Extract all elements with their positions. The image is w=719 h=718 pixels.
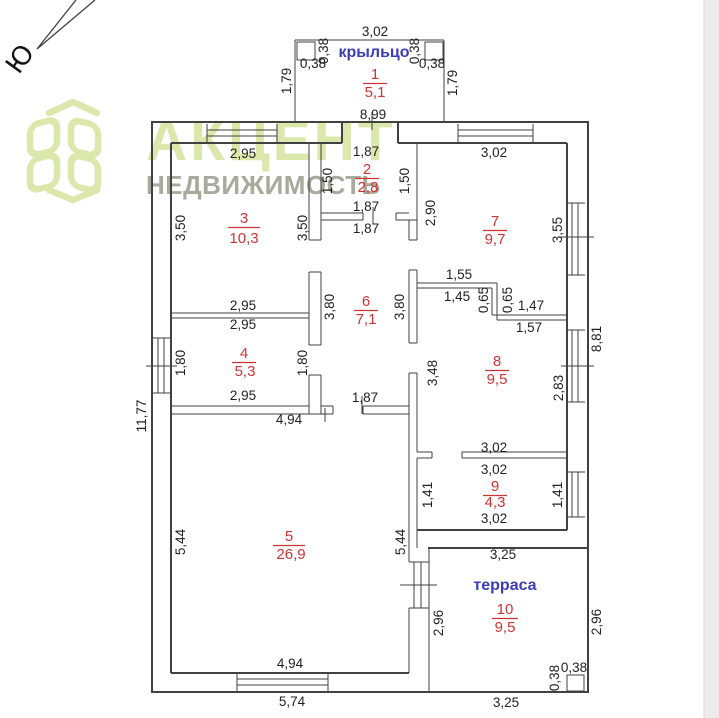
room-number: 5 xyxy=(285,528,293,545)
dimension-label: 1,80 xyxy=(295,350,310,376)
dimension-label: 1,79 xyxy=(445,70,460,96)
dimension-label: 1,45 xyxy=(444,289,470,304)
dimension-label: 0,38 xyxy=(316,38,331,64)
cube-logo-icon xyxy=(30,102,98,200)
dimension-label: 3,02 xyxy=(481,440,507,455)
room-number: 6 xyxy=(362,293,370,310)
dimension-label: 2,95 xyxy=(230,317,256,332)
compass: Ю xyxy=(0,0,95,79)
room-number: 4 xyxy=(240,345,248,362)
dimension-label: 3,25 xyxy=(493,695,519,710)
dimension-label: 3,02 xyxy=(481,145,507,160)
room-area: 26,9 xyxy=(276,546,305,563)
dimension-label: 0,38 xyxy=(561,660,587,675)
dimension-label: 2,96 xyxy=(431,610,446,636)
dimension-label: 1,47 xyxy=(518,298,544,313)
terrace-label: терраса xyxy=(473,577,536,594)
dimension-label: 3,80 xyxy=(392,294,407,320)
dimension-label: 3,02 xyxy=(481,462,507,477)
dimension-label: 0,65 xyxy=(476,287,491,313)
dimension-label: 2,96 xyxy=(589,609,604,635)
dimension-label: 1,87 xyxy=(353,221,379,236)
dimension-label: 3,25 xyxy=(490,547,516,562)
dimension-label: 4,94 xyxy=(277,656,304,671)
logo-title: АКЦЕНТ xyxy=(146,109,396,173)
dimension-label: 5,74 xyxy=(279,694,306,709)
dimension-label: 3,55 xyxy=(550,217,565,243)
dimension-label: 1,50 xyxy=(320,168,335,194)
dimension-label: 11,77 xyxy=(134,400,149,433)
dimension-label: 2,95 xyxy=(230,146,256,161)
room-number: 10 xyxy=(497,601,514,618)
dimension-label: 0,65 xyxy=(500,287,515,313)
logo-subtitle: НЕДВИЖИМОСТЬ xyxy=(146,170,381,200)
dimension-label: 8,81 xyxy=(589,326,604,352)
room-area: 7,1 xyxy=(356,311,377,328)
dimension-label: 2,90 xyxy=(423,200,438,226)
compass-label: Ю xyxy=(0,39,41,79)
page-right-strip xyxy=(704,0,719,718)
compass-arrow xyxy=(37,0,95,49)
dimension-label: 5,44 xyxy=(393,528,408,555)
room-area: 10,3 xyxy=(229,230,258,247)
dimension-label: 2,95 xyxy=(230,388,256,403)
dimension-label: 1,57 xyxy=(516,320,542,335)
agency-logo: АКЦЕНТ НЕДВИЖИМОСТЬ xyxy=(30,102,396,200)
dimension-label: 3,48 xyxy=(425,360,440,386)
room-area: 5,3 xyxy=(235,363,256,380)
floor-plan-image: АКЦЕНТ НЕДВИЖИМОСТЬ Ю xyxy=(0,0,719,718)
room-number: 1 xyxy=(371,66,379,83)
dimension-label: 1,87 xyxy=(353,144,379,159)
dimension-label: 3,50 xyxy=(173,215,188,241)
room-area: 9,5 xyxy=(495,619,516,636)
dimension-label: 2,95 xyxy=(230,298,256,313)
dimension-label: 1,41 xyxy=(550,482,565,508)
dimension-label: 3,02 xyxy=(362,24,388,39)
terrace-pillar xyxy=(567,675,584,691)
dimension-label: 3,50 xyxy=(295,215,310,241)
room-number: 2 xyxy=(363,161,371,178)
room-area: 2,8 xyxy=(358,179,379,196)
dimension-label: 1,80 xyxy=(173,350,188,376)
dimension-label: 2,83 xyxy=(551,375,566,401)
room-number: 3 xyxy=(240,210,248,227)
dimension-label: 1,41 xyxy=(420,482,435,508)
porch-label: крыльцо xyxy=(338,44,409,61)
dimension-label: 1,87 xyxy=(352,390,378,405)
room-area: 5,1 xyxy=(365,84,386,101)
dimension-label: 3,02 xyxy=(481,511,507,526)
dimension-label: 5,44 xyxy=(173,528,188,555)
dimension-label: 1,50 xyxy=(397,168,412,194)
dimension-label: 8,99 xyxy=(360,107,386,122)
dimension-label: 4,94 xyxy=(276,412,303,427)
dimension-label: 1,55 xyxy=(446,267,472,282)
dimension-label: 1,87 xyxy=(353,199,379,214)
room-number: 9 xyxy=(491,478,499,495)
room-area: 9,7 xyxy=(485,231,506,248)
room-area: 4,3 xyxy=(485,494,506,511)
dimension-label: 3,80 xyxy=(322,294,337,320)
room-number: 7 xyxy=(491,213,499,230)
dimension-label: 0,38 xyxy=(547,665,562,691)
room-number: 8 xyxy=(493,353,501,370)
dimension-label: 0,38 xyxy=(419,56,445,71)
room-area: 9,5 xyxy=(487,371,508,388)
dimension-label: 1,79 xyxy=(279,68,294,94)
dimension-label: 0,38 xyxy=(407,38,422,64)
